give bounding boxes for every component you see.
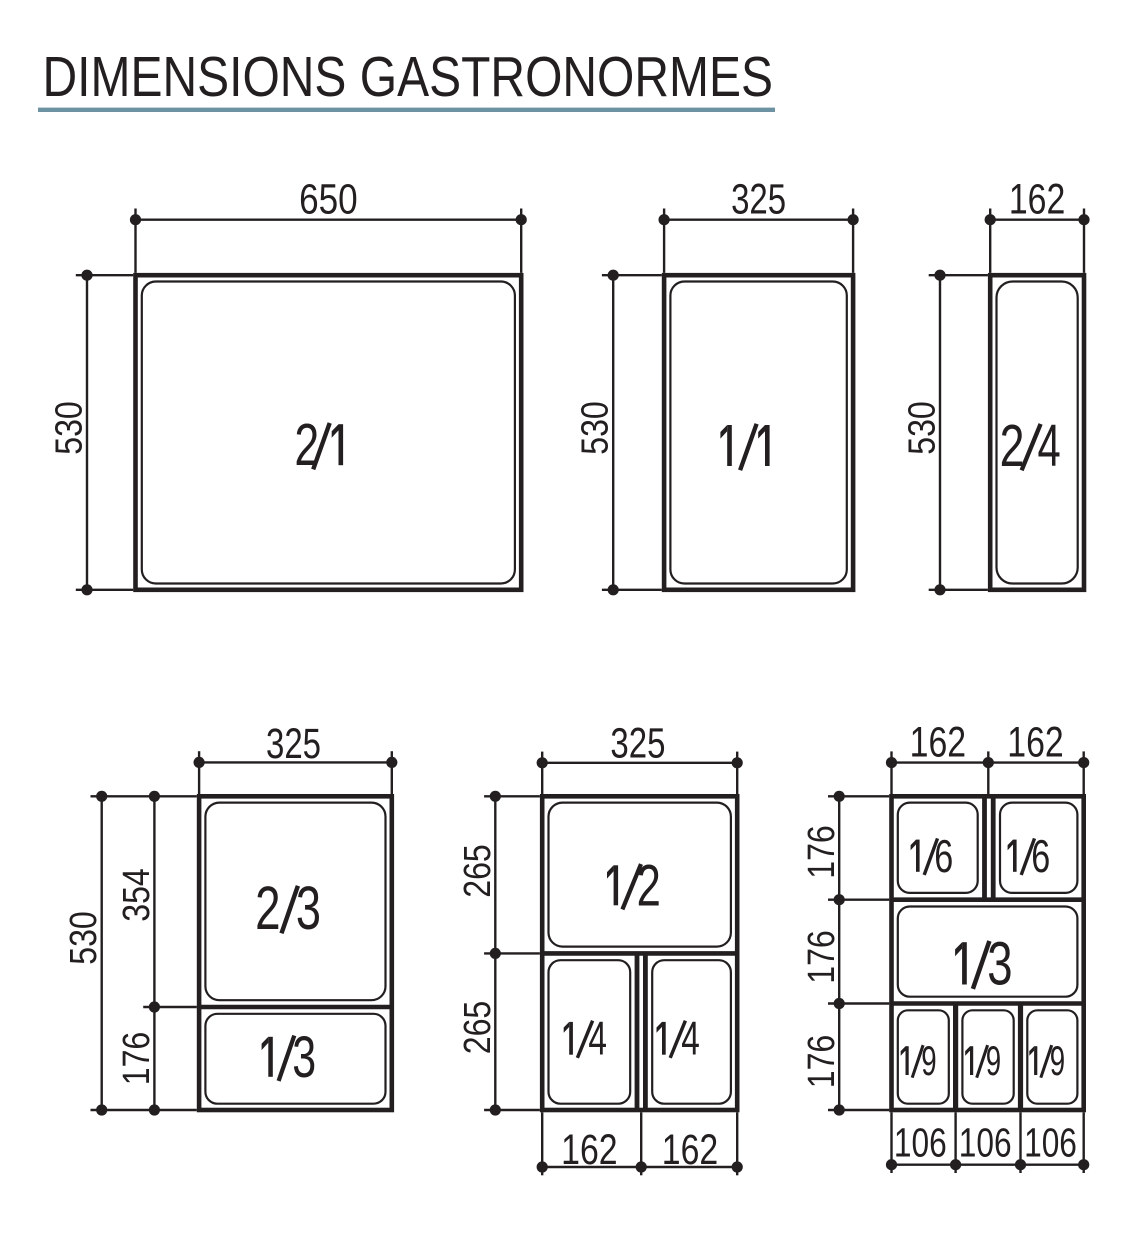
- svg-text:530: 530: [574, 401, 616, 455]
- svg-text:530: 530: [48, 401, 90, 455]
- svg-text:176: 176: [800, 1035, 842, 1089]
- svg-text:3: 3: [987, 930, 1012, 998]
- svg-text:106: 106: [1024, 1120, 1077, 1166]
- svg-text:162: 162: [1009, 176, 1065, 223]
- svg-text:6: 6: [934, 830, 953, 883]
- svg-text:176: 176: [800, 825, 842, 879]
- svg-text:265: 265: [456, 1001, 498, 1055]
- svg-text:9: 9: [1050, 1037, 1065, 1084]
- svg-text:162: 162: [910, 719, 966, 766]
- svg-text:162: 162: [662, 1126, 718, 1173]
- svg-text:650: 650: [299, 177, 358, 224]
- svg-text:530: 530: [901, 401, 943, 455]
- svg-text:9: 9: [986, 1037, 1001, 1084]
- svg-text:2: 2: [255, 875, 280, 943]
- svg-text:DIMENSIONS GASTRONORMES: DIMENSIONS GASTRONORMES: [43, 45, 774, 109]
- svg-text:106: 106: [894, 1120, 947, 1166]
- svg-text:4: 4: [681, 1012, 700, 1065]
- svg-text:106: 106: [959, 1120, 1012, 1166]
- svg-text:325: 325: [610, 721, 665, 768]
- svg-text:9: 9: [921, 1037, 936, 1084]
- svg-text:176: 176: [116, 1032, 158, 1086]
- svg-text:4: 4: [1037, 412, 1060, 479]
- svg-text:162: 162: [1007, 719, 1063, 766]
- svg-text:530: 530: [63, 911, 105, 965]
- svg-text:6: 6: [1031, 830, 1050, 883]
- svg-text:3: 3: [296, 874, 321, 942]
- svg-text:162: 162: [561, 1126, 617, 1173]
- svg-text:2: 2: [637, 853, 661, 917]
- svg-text:176: 176: [800, 930, 842, 984]
- svg-text:325: 325: [266, 721, 321, 768]
- svg-text:265: 265: [456, 844, 498, 898]
- svg-text:325: 325: [731, 177, 786, 224]
- svg-text:3: 3: [292, 1025, 316, 1090]
- svg-text:4: 4: [588, 1012, 607, 1065]
- svg-text:354: 354: [116, 868, 158, 922]
